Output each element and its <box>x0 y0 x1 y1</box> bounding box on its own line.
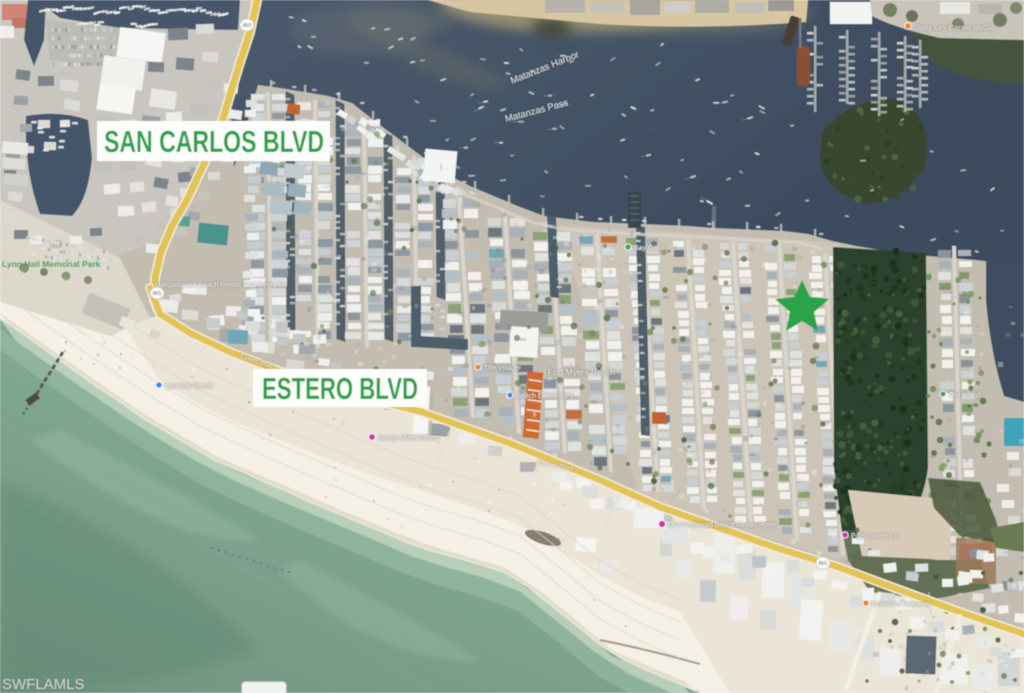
svg-text:Out Island: Out Island <box>949 392 981 399</box>
svg-text:Palm Street Inn: Palm Street Inn <box>851 533 899 540</box>
svg-text:865: 865 <box>153 291 162 297</box>
svg-text:ESTERO BLVD: ESTERO BLVD <box>262 371 418 406</box>
svg-text:865: 865 <box>243 23 252 29</box>
svg-text:SAN CARLOS BLVD: SAN CARLOS BLVD <box>104 124 324 159</box>
svg-text:Moore Rd Hideaway: Moore Rd Hideaway <box>872 601 932 608</box>
svg-text:Sandy Motel Resort: Sandy Motel Resort <box>378 435 440 442</box>
svg-text:Beach Elementary: Beach Elementary <box>516 393 574 400</box>
svg-text:SWFLAMLS: SWFLAMLS <box>2 676 85 693</box>
svg-text:Salty Key Canoe McGill: Salty Key Canoe McGill <box>915 23 994 32</box>
svg-text:Bay Oaks: Bay Oaks <box>634 245 665 252</box>
svg-text:Fort Myers Beach: Fort Myers Beach <box>548 367 615 377</box>
svg-text:Margaritaville Beach Resort Fo: Margaritaville Beach Resort Fort Myers B… <box>155 282 287 289</box>
svg-text:Lani Kai Resort: Lani Kai Resort <box>165 383 213 390</box>
svg-text:DiamondHead Beach Resort Hotel: DiamondHead Beach Resort Hotel <box>668 522 776 529</box>
svg-text:865: 865 <box>819 561 828 567</box>
svg-text:Lynn Hall Memorial Park: Lynn Hall Memorial Park <box>2 259 101 269</box>
svg-text:The Villager: The Villager <box>484 365 522 372</box>
